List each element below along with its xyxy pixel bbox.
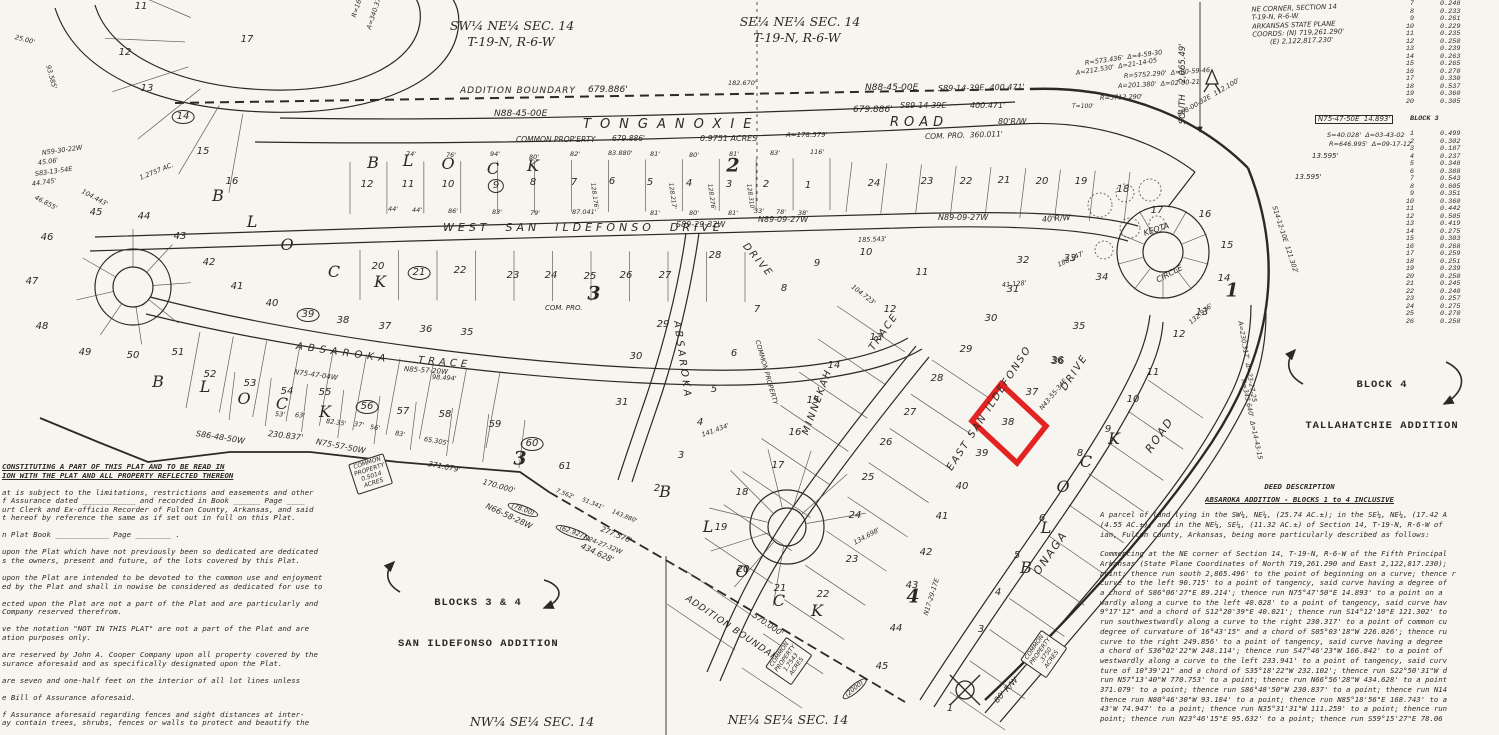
map-label: 679.886' (612, 135, 645, 143)
lot-number: 13 (1196, 308, 1209, 318)
section-label: SE¼ NE¼ SEC. 14 (740, 16, 861, 29)
block-letter: O (280, 237, 293, 253)
tree-scribble-icon (1139, 179, 1161, 201)
lot-line (1124, 172, 1130, 222)
lot-number: 42 (203, 258, 216, 268)
lot-number: 41 (936, 512, 949, 522)
deed-line: (4.55 AC.±); and in the NE¼, SE¼, (11.32… (1100, 520, 1499, 530)
deed-line (1100, 540, 1499, 550)
lot-line (1134, 269, 1150, 290)
lot-line (793, 451, 811, 508)
map-label: 83.880' (608, 150, 633, 157)
lot-number: 15 (807, 396, 820, 406)
map-label: R=646.995' Δ=09-17-12 (1329, 141, 1411, 148)
lot-line (890, 428, 950, 468)
area-row-number: 20 (1396, 99, 1414, 107)
deed-line: a chord of S86°06'27"E 89.214'; thence r… (1100, 588, 1499, 598)
block-letter: K (1108, 431, 1120, 447)
block-letter: C (487, 161, 499, 177)
lot-number: 27 (904, 408, 917, 418)
map-label: 80' (689, 210, 699, 217)
map-label: 400.471' (970, 102, 1005, 110)
lot-number: 29 (657, 320, 670, 330)
map-label: 81' (650, 210, 660, 217)
lot-number: 6 (731, 349, 737, 359)
map-label: N89-09-27W (758, 216, 808, 224)
map-label: 83' (492, 209, 502, 216)
map-label: 83' (394, 430, 405, 438)
map-label: 679.886' (588, 86, 628, 95)
map-label: 0.9751 ACRES (700, 135, 757, 143)
lot-number: 42 (920, 548, 933, 558)
map-label: S89-14-39E (900, 102, 946, 110)
lot-line (709, 508, 767, 522)
lot-line (1148, 380, 1203, 418)
lot-number: 4 (697, 418, 703, 428)
lot-number: 19 (1075, 177, 1088, 187)
lot-number: 4 (686, 179, 692, 189)
map-label: ROAD (890, 116, 948, 129)
legal-text-line: n Plat Book ____________ Page ________ . (2, 531, 394, 540)
lot-line (985, 167, 991, 217)
lot-number: 18 (736, 488, 749, 498)
area-row-value: 0.258 (1440, 319, 1460, 327)
callout-tallahatchie-line2: TALLAHATCHIE ADDITION (1302, 420, 1462, 434)
section-label: NE¼ SE¼ SEC. 14 (728, 714, 849, 727)
deed-line: Arkansas (State Plane Coordinates of Nor… (1100, 559, 1499, 569)
tree-scribble-icon (1120, 218, 1140, 238)
lot-line (338, 390, 344, 438)
map-label: N75-47-50E 14.893' (1315, 115, 1393, 124)
map-label: A=178.579' (786, 132, 828, 139)
lot-number: 39 (297, 308, 320, 322)
deed-subheading: ABSAROKA ADDITION - BLOCKS 1 to 4 INCLUS… (1100, 495, 1499, 505)
deed-line: 9°17'12" and a chord of S12°20'39"E 40.0… (1100, 607, 1499, 617)
lot-number: 23 (921, 177, 934, 187)
map-label: COM. PRO. (545, 305, 582, 312)
lot-number: 16 (226, 177, 239, 187)
keota-connector (1168, 172, 1195, 207)
lot-number: 32 (1017, 256, 1030, 266)
lot-number: 38 (337, 316, 350, 326)
block-number: 1 (1225, 282, 1238, 301)
block-letter: C (328, 264, 340, 280)
lot-line (1120, 234, 1144, 244)
lot-number: 23 (846, 555, 859, 565)
legal-title-line: ION WITH THE PLAT AND ALL PROPERTY REFLE… (2, 472, 394, 481)
lot-number: 16 (1199, 210, 1212, 220)
map-label: TONGANOXIE (583, 118, 760, 131)
section-label: T-19-N, R-6-W (753, 32, 840, 45)
block-letter: B (659, 484, 671, 500)
block-letter: L (1041, 520, 1052, 536)
lot-number: 25 (584, 272, 597, 282)
block-letter: B (152, 374, 164, 390)
map-label: 44' (412, 207, 422, 214)
lot-number: 26 (620, 271, 633, 281)
lot-number: 11 (1147, 368, 1160, 378)
callout-san-ildefonso: BLOCKS 3 & 4 SAN ILDEFONSO ADDITION (398, 570, 558, 679)
lot-line (1020, 168, 1026, 218)
lot-number: 22 (817, 590, 830, 600)
lot-number: 17 (241, 35, 254, 45)
lot-number: 24 (868, 179, 881, 189)
block-letter: O (237, 391, 250, 407)
area-row-number: 26 (1396, 319, 1414, 327)
lot-number: 44 (890, 624, 903, 634)
lot-number: 3 (978, 625, 984, 635)
lot-number: 11 (916, 268, 929, 278)
corner-note: NE CORNER, SECTION 14T-19-N, R-6-WARKANS… (1251, 2, 1344, 47)
absaroka-trace-north (150, 297, 908, 370)
lot-number: 35 (1073, 322, 1086, 332)
map-label: 98.494' (432, 374, 457, 382)
map-label: 56' (370, 424, 381, 432)
callout-tallahatchie-line1: BLOCK 4 (1302, 379, 1462, 393)
map-label: SOUTH 2,065.49' (1179, 43, 1188, 124)
map-label: 116' (810, 149, 824, 156)
lot-number: 8 (530, 178, 536, 188)
lot-line (186, 332, 200, 408)
lot-number: 4 (995, 588, 1001, 598)
tree-scribble-icon (1088, 193, 1112, 217)
lot-number: 15 (197, 147, 210, 157)
lot-line (353, 354, 367, 430)
lot-number: 8 (781, 284, 787, 294)
area-row-value: 0.305 (1440, 99, 1460, 107)
lot-number: 47 (26, 277, 39, 287)
map-label: 94' (490, 151, 500, 158)
lot-area-table: 70.24880.23390.261100.229110.235120.2501… (1396, 1, 1496, 326)
lot-number: 39 (976, 449, 989, 459)
map-label: T=100' (1072, 104, 1094, 110)
lot-line (1182, 234, 1206, 244)
block-number: 3 (587, 285, 600, 304)
lot-line (802, 474, 847, 514)
lot-number: 12 (119, 48, 132, 58)
map-label: 80' (689, 152, 699, 159)
lot-number: 22 (454, 266, 467, 276)
map-label: 185.543' (858, 236, 887, 243)
deed-line: 43'W 74.947' to a point; thence run N35°… (1100, 704, 1499, 714)
area-table-block3-header: BLOCK 3 (1410, 115, 1496, 123)
lot-number-highlighted: 38 (1002, 418, 1015, 428)
block-letter: B (367, 155, 379, 171)
deed-line: ian, Fulton County, Arkansas, being more… (1100, 530, 1499, 540)
lot-line (950, 166, 956, 216)
map-label: 13.595' (1295, 174, 1321, 181)
lot-number: 13 (141, 84, 154, 94)
lot-number: 7 (754, 305, 760, 315)
map-label: 87.041' (572, 209, 597, 216)
map-label: S89-14-39E 400.471' (938, 83, 1025, 93)
lot-line (869, 463, 929, 503)
lot-number: 28 (709, 251, 722, 261)
map-label: N88-45-00E (865, 84, 918, 93)
section-corner-x-icon (950, 675, 980, 705)
tree-scribble-icon (1095, 241, 1113, 259)
block-letter: O (441, 156, 454, 172)
deed-line: degree of curvature of 16°43'15" and a c… (1100, 627, 1499, 637)
lot-number: 43 (174, 232, 187, 242)
legal-text-line: ed by the Plat and shall in nowise be co… (2, 583, 394, 592)
block-letter: L (247, 214, 258, 230)
block-number: 4 (906, 588, 919, 607)
map-label: 63' (295, 412, 305, 419)
lot-number: 40 (266, 299, 279, 309)
lot-number: 30 (985, 314, 998, 324)
lot-number: 24 (545, 271, 558, 281)
map-label: 86' (448, 208, 458, 215)
map-label: 13.595' (1312, 153, 1338, 160)
lot-number: 3 (726, 180, 732, 190)
lot-line (805, 565, 865, 605)
lot-number: 10 (442, 180, 455, 190)
legal-text-line: ation purposes only. (2, 634, 394, 643)
lot-number: 22 (960, 177, 973, 187)
lot-line (486, 372, 500, 448)
lot-number: 11 (402, 180, 415, 190)
lot-number: 30 (630, 352, 643, 362)
block-number: 3 (513, 450, 526, 469)
deed-line: ture of 10°39'21" and a chord of S35°18'… (1100, 666, 1499, 676)
block-letter: C (276, 396, 288, 412)
lot-number: 6 (609, 177, 615, 187)
legal-text-line: surance aforesaid and as specifically de… (2, 660, 394, 669)
lot-line (83, 258, 116, 277)
lot-number: 37 (1026, 388, 1039, 398)
map-label: 679.886' (853, 106, 893, 115)
lot-number: 35 (461, 328, 474, 338)
block-letter: K (374, 274, 386, 290)
lot-number: 12 (884, 305, 897, 315)
lot-number: 61 (559, 462, 572, 472)
lot-number: 5 (711, 385, 717, 395)
lot-number: 20 (372, 262, 385, 272)
legal-text-line: s the owners, present and future, of the… (2, 557, 394, 566)
block-letter: O (735, 564, 748, 580)
deed-line: thence run N80°46'30"W 93.184' to a poin… (1100, 695, 1499, 705)
lot-number: 12 (1173, 330, 1186, 340)
legal-text-line: Company reserved therefrom. (2, 608, 394, 617)
map-label: 82' (570, 151, 580, 158)
map-label: ADDITION BOUNDARY (460, 87, 576, 96)
lot-number: 7 (571, 178, 577, 188)
lot-number: 50 (127, 351, 140, 361)
lot-number: 51 (172, 348, 185, 358)
lot-number: 19 (715, 523, 728, 533)
map-label: COMMON PROP'ERTY (516, 136, 595, 144)
block-number: 2 (726, 157, 739, 176)
lot-line (302, 384, 308, 432)
lot-line (1174, 211, 1187, 234)
block-letter: C (1080, 454, 1092, 470)
map-label: 81' (728, 210, 738, 217)
west-culdesac-island (113, 267, 153, 307)
lot-number: 37 (379, 322, 392, 332)
lot-line (1009, 598, 1064, 636)
lot-line (229, 372, 235, 420)
lot-number: 21 (408, 266, 431, 280)
lot-number: 29 (960, 345, 973, 355)
tallahatchie-arrow-left-icon (1289, 350, 1303, 384)
deed-line: A parcel of land lying in the SW¼, NE¼, … (1100, 510, 1499, 520)
block-letter: L (703, 519, 714, 535)
block-letter: K (811, 603, 823, 619)
lot-line (265, 378, 271, 426)
lot-number: 57 (397, 407, 410, 417)
lot-line (386, 359, 400, 435)
map-label: 78' (776, 209, 786, 216)
lot-line (768, 449, 782, 507)
legal-text-line: t hereof by reference the same as if set… (2, 514, 394, 523)
lot-number: 25 (862, 473, 875, 483)
lot-line (911, 394, 971, 434)
lot-number: 14 (172, 110, 195, 124)
deed-line: westwardly along a curve to the left 233… (1100, 656, 1499, 666)
deed-line: 371.079' to a point; thence run S86°48'5… (1100, 685, 1499, 695)
deed-line: point; thence run south 2,865.496' to th… (1100, 569, 1499, 579)
lot-number: 1 (805, 181, 811, 191)
lot-number: 48 (36, 322, 49, 332)
deed-line: wardly along a curve to the left 40.028'… (1100, 598, 1499, 608)
lot-line (100, 304, 121, 335)
lot-number: 31 (616, 398, 629, 408)
lot-number: 40 (956, 482, 969, 492)
section-label: T-19-N, R-6-W (467, 36, 554, 49)
legal-text-line: e Bill of Assurance aforesaid. (2, 694, 394, 703)
lot-number: 45 (90, 208, 103, 218)
deed-line: curve to the right 249.856' to a point o… (1100, 637, 1499, 647)
lot-number: 2 (763, 180, 769, 190)
lot-number: 15 (1221, 241, 1234, 251)
lot-number: 12 (361, 180, 374, 190)
plat-map-scan: BLOCK 4 TALLAHATCHIE ADDITION BLOCKS 3 &… (0, 0, 1499, 735)
area-row: 260.258 (1396, 319, 1496, 327)
map-label: 44' (388, 206, 398, 213)
map-label: 83' (770, 150, 780, 157)
map-label: N89-09-27W (938, 214, 988, 222)
lot-number: 41 (231, 282, 244, 292)
lot-number: 10 (860, 248, 873, 258)
block-letter: B (1020, 560, 1032, 576)
lot-number: 36 (420, 325, 433, 335)
lot-number: 14 (828, 361, 841, 371)
lot-line (1118, 257, 1143, 264)
lot-number: 13 (870, 333, 883, 343)
deed-heading: DEED DESCRIPTION (1100, 482, 1499, 492)
lot-number: 27 (659, 271, 672, 281)
lot-number: 18 (1117, 185, 1130, 195)
lot-number: 49 (79, 348, 92, 358)
deed-line: curve to the left 90.715' to a point of … (1100, 578, 1499, 588)
lot-line (846, 162, 852, 212)
block-letter: K (527, 158, 539, 174)
block-letter: L (200, 379, 211, 395)
area-row: 200.305 (1396, 99, 1496, 107)
map-label: 182.670' (728, 80, 757, 87)
lot-number: 16 (789, 428, 802, 438)
lot-number: 21 (998, 176, 1011, 186)
lot-number: 45 (876, 662, 889, 672)
lot-number: 1 (947, 704, 953, 714)
block-letter: O (1056, 479, 1069, 495)
legal-text-block: CONSTITUTING A PART OF THIS PLAT AND TO … (2, 463, 394, 735)
map-label: R=5712.290' (1100, 94, 1143, 102)
lot-number: 5 (647, 178, 653, 188)
lot-number: 56 (356, 400, 379, 414)
legal-text-line: are seven and one-half feet on the inter… (2, 677, 394, 686)
map-label: S89-29-32W (676, 221, 725, 229)
deed-description: DEED DESCRIPTION ABSAROKA ADDITION - BLO… (1100, 482, 1499, 735)
lot-number: 58 (439, 410, 452, 420)
map-label: 38' (798, 210, 808, 217)
block-letter: C (773, 593, 785, 609)
lot-number: 55 (319, 388, 332, 398)
lot-number: 17 (1151, 206, 1164, 216)
lot-number: 9 (814, 259, 820, 269)
section-label: NW¼ SE¼ SEC. 14 (470, 716, 594, 729)
lot-number: 33 (1064, 254, 1077, 264)
lot-number: 36 (1052, 357, 1065, 367)
lot-line (136, 307, 142, 345)
lot-number: 24 (849, 511, 862, 521)
lot-number: 3 (678, 451, 684, 461)
lot-line (117, 0, 191, 18)
map-label: 37' (354, 421, 365, 429)
lot-line (1183, 257, 1208, 264)
lot-number: 20 (1036, 177, 1049, 187)
map-label: 80'R/W (998, 118, 1027, 126)
lot-number: 53 (244, 379, 257, 389)
lot-number: 17 (772, 461, 785, 471)
legal-text-line: ay contain trees, shrubs, fences or wall… (2, 719, 394, 728)
lot-line (410, 402, 416, 450)
deed-line: run southwestwardly along a curve to the… (1100, 617, 1499, 627)
deed-body: A parcel of land lying in the SW¼, NE¼, … (1100, 510, 1499, 723)
lot-line (1089, 171, 1095, 221)
lot-line (153, 283, 191, 286)
block-letter: K (319, 404, 331, 420)
block-letter: B (212, 188, 224, 204)
callout-san-ildefonso-line1: BLOCKS 3 & 4 (398, 597, 558, 611)
lot-number: 34 (1096, 273, 1109, 283)
lot-number: 26 (880, 438, 893, 448)
section-label: SW¼ NE¼ SEC. 14 (450, 20, 574, 33)
deed-line: a chord of S36°02'22"W 248.114'; thence … (1100, 646, 1499, 656)
lot-number: 28 (931, 374, 944, 384)
lot-number: 23 (507, 271, 520, 281)
deed-line: run N57°13'40"W 770.753' to a point; the… (1100, 675, 1499, 685)
lot-number: 59 (489, 420, 502, 430)
lot-number: 46 (41, 233, 54, 243)
absaroka-trace-south (146, 314, 922, 385)
lot-line (916, 165, 922, 215)
map-label: N88-45-00E (494, 110, 547, 119)
lot-line (881, 163, 887, 213)
map-label: S=40.028' Δ=03-43-02 (1327, 132, 1405, 139)
loop-road-outer (55, 0, 459, 112)
callout-san-ildefonso-line2: SAN ILDEFONSO ADDITION (398, 638, 558, 652)
block-letter: L (403, 153, 414, 169)
lot-number: 10 (1127, 395, 1140, 405)
map-label: 81' (650, 151, 660, 158)
callout-tallahatchie: BLOCK 4 TALLAHATCHIE ADDITION (1302, 352, 1462, 461)
lot-line (1055, 170, 1061, 220)
lot-number: 31 (1007, 285, 1020, 295)
lot-line (711, 533, 768, 551)
lot-number: 11 (135, 2, 148, 12)
